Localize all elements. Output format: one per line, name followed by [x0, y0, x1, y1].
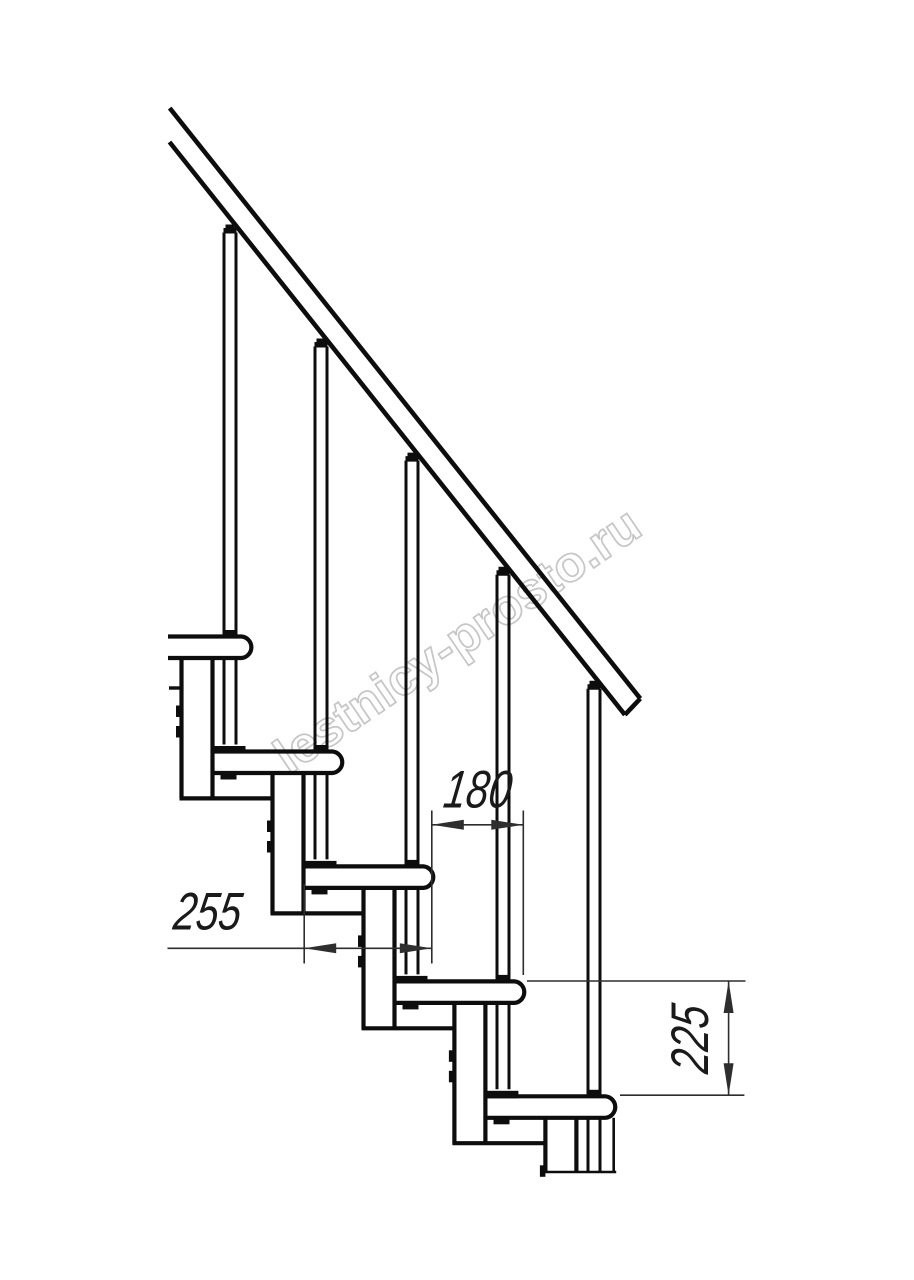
svg-text:255: 255 — [169, 883, 246, 942]
svg-text:225: 225 — [661, 1000, 720, 1077]
svg-text:180: 180 — [440, 760, 516, 819]
